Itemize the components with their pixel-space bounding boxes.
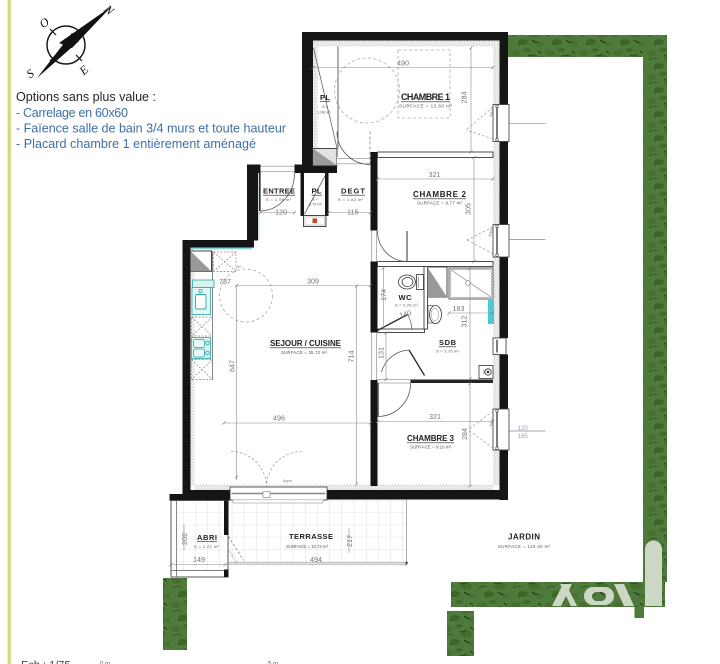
svg-text:SURFACE = 12.60 m²: SURFACE = 12.60 m²	[399, 104, 452, 109]
svg-text:S =: S =	[322, 104, 329, 109]
svg-text:SURFACE = 9.77 m²: SURFACE = 9.77 m²	[417, 201, 463, 206]
svg-text:SURFACE = 35.72 m²: SURFACE = 35.72 m²	[281, 350, 328, 355]
svg-text:714: 714	[347, 351, 356, 363]
svg-text:- Placard chambre 1 entièremen: - Placard chambre 1 entièrement aménagé	[16, 137, 256, 151]
svg-text:PL: PL	[312, 187, 322, 196]
svg-text:SURFACE = 120.40 m²: SURFACE = 120.40 m²	[498, 544, 551, 549]
svg-text:CHAMBRE 3: CHAMBRE 3	[407, 434, 455, 443]
svg-text:S = 3.76 m²: S = 3.76 m²	[436, 349, 460, 354]
svg-text:202: 202	[180, 533, 189, 545]
svg-text:494: 494	[310, 555, 322, 564]
svg-text:131: 131	[377, 347, 386, 359]
svg-text:787: 787	[219, 277, 231, 286]
svg-text:Appui: Appui	[283, 479, 292, 483]
svg-text:149: 149	[193, 555, 205, 564]
svg-text:S = 2.21 m²: S = 2.21 m²	[194, 544, 220, 549]
svg-text:S = 1.82 m²: S = 1.82 m²	[338, 197, 364, 202]
svg-text:ENTREE: ENTREE	[263, 187, 295, 196]
svg-text:115: 115	[347, 208, 358, 217]
svg-text:490: 490	[397, 59, 409, 68]
svg-text:MO: MO	[237, 265, 243, 269]
svg-text:165: 165	[518, 433, 529, 440]
svg-text:S =: S =	[312, 198, 319, 202]
svg-text:120: 120	[275, 208, 287, 217]
svg-text:284: 284	[460, 428, 469, 440]
svg-text:SURFACE = 9.10 m²: SURFACE = 9.10 m²	[410, 445, 452, 450]
svg-text:- Faïence salle de bain 3/4 mu: - Faïence salle de bain 3/4 murs et tout…	[16, 122, 286, 136]
svg-text:SEJOUR / CUISINE: SEJOUR / CUISINE	[270, 339, 342, 348]
svg-text:DEGT: DEGT	[341, 187, 365, 196]
svg-text:TERRASSE: TERRASSE	[289, 532, 333, 541]
svg-text:SURFACE = 10.72 m²: SURFACE = 10.72 m²	[286, 544, 329, 549]
svg-text:Ech : 1/75: Ech : 1/75	[21, 660, 71, 664]
svg-text:ABRI: ABRI	[197, 533, 217, 542]
svg-text:0.72 m²: 0.72 m²	[309, 203, 323, 207]
svg-text:EC: EC	[483, 368, 487, 373]
svg-text:309: 309	[307, 277, 319, 286]
svg-text:WC: WC	[399, 293, 413, 302]
svg-text:S = 2.26 m²: S = 2.26 m²	[395, 303, 419, 308]
svg-text:- Carrelage en 60x60: - Carrelage en 60x60	[16, 106, 128, 120]
svg-text:CHAMBRE 1: CHAMBRE 1	[401, 92, 450, 102]
svg-text:174: 174	[379, 289, 388, 301]
svg-text:PL: PL	[320, 93, 330, 102]
svg-text:S = 1.98 m²: S = 1.98 m²	[266, 197, 292, 202]
svg-text:284: 284	[460, 92, 469, 104]
svg-text:321: 321	[429, 170, 441, 179]
svg-text:Options sans plus value :: Options sans plus value :	[16, 90, 156, 104]
svg-text:217: 217	[345, 535, 354, 547]
svg-text:305: 305	[464, 203, 473, 215]
svg-text:496: 496	[273, 414, 285, 423]
svg-text:CHAMBRE 2: CHAMBRE 2	[413, 190, 467, 199]
svg-text:321: 321	[429, 412, 441, 421]
svg-text:120: 120	[518, 425, 529, 432]
svg-text:312: 312	[459, 316, 468, 328]
svg-text:647: 647	[228, 360, 237, 372]
svg-text:SDB: SDB	[439, 338, 457, 347]
svg-text:1.08 m²: 1.08 m²	[317, 110, 331, 115]
svg-text:JARDIN: JARDIN	[508, 533, 540, 542]
svg-text:183: 183	[453, 304, 465, 313]
